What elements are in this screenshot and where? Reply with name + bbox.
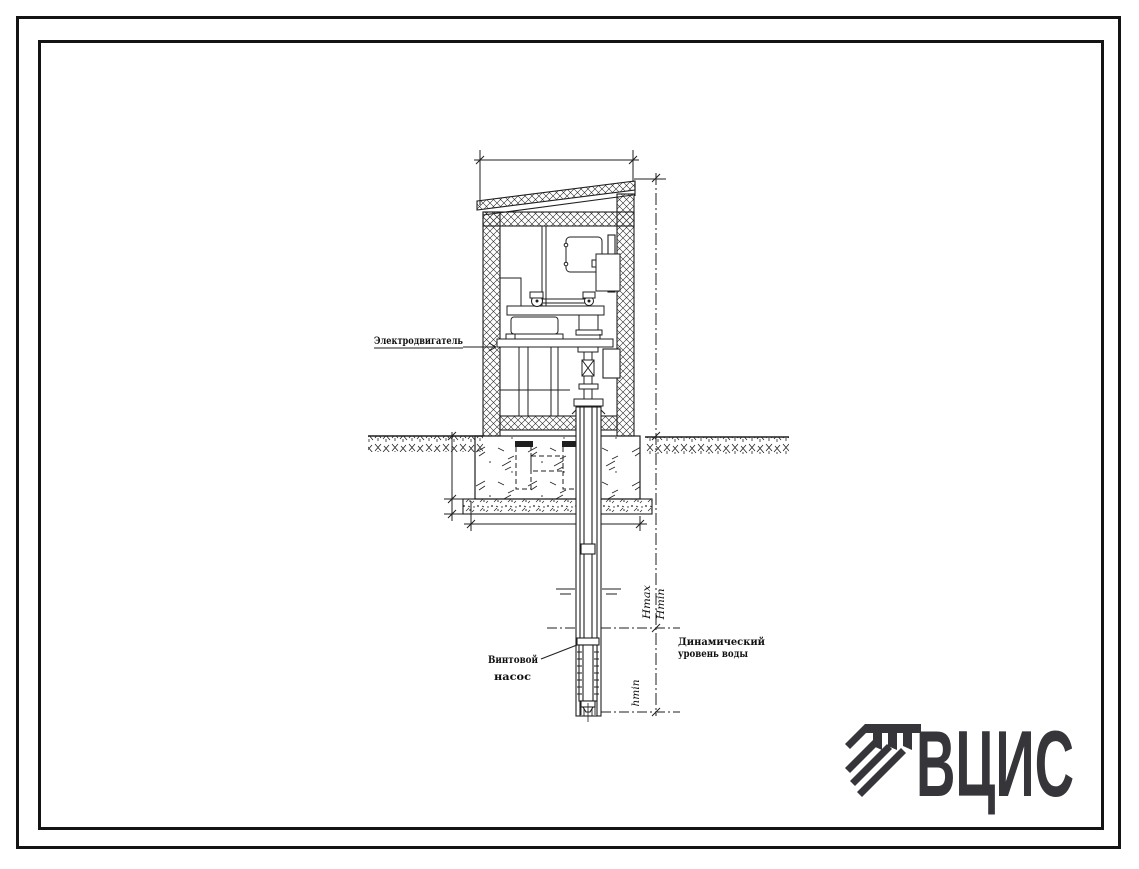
- hmax-dimension-label: Hmax: [642, 585, 653, 621]
- depth-dimension-labels: Hmax Hmin hmin: [631, 585, 667, 707]
- interior-equipment: [497, 226, 620, 416]
- drawing-sheet: Электродвигатель Винтовой насос Динамиче…: [0, 0, 1139, 869]
- electrical-conduit: [500, 278, 521, 306]
- dimension-lines: [444, 150, 680, 716]
- ground-surface-left: [368, 436, 483, 452]
- dynamic-level-label-line2: уровень воды: [678, 649, 748, 660]
- pump-label-line1: Винтовой: [488, 654, 538, 666]
- left-wall: [483, 212, 500, 436]
- technical-drawing: Электродвигатель Винтовой насос Динамиче…: [0, 0, 1139, 869]
- hmin-dimension-label: Hmin: [656, 589, 667, 621]
- screw-pump: [577, 638, 599, 712]
- ground-surface-right: [645, 437, 789, 454]
- vcis-column-emblem-icon: [845, 724, 921, 797]
- drive-frame-beam: [507, 306, 604, 315]
- anchor-plate: [515, 441, 533, 447]
- pump-callout: Винтовой насос: [488, 645, 577, 683]
- motor-callout: Электродвигатель: [374, 335, 496, 351]
- right-wall: [617, 194, 634, 436]
- motor-label: Электродвигатель: [374, 335, 463, 347]
- riser-coupling: [581, 544, 595, 554]
- wall-niche: [603, 349, 620, 378]
- dynamic-level-label-line1: Динамический: [678, 637, 766, 648]
- dynamic-level-callout: Динамический уровень воды: [678, 637, 766, 660]
- foundation-block: [475, 436, 640, 499]
- vcis-logo-text: ВЦИС: [916, 711, 1074, 816]
- pump-discharge-head: [576, 315, 602, 335]
- belt-drive: [530, 292, 595, 307]
- gravel-bedding: [463, 499, 652, 514]
- callout-labels: Электродвигатель Винтовой насос Динамиче…: [374, 335, 766, 707]
- ceiling-slab: [483, 212, 634, 226]
- hlower-dimension-label: hmin: [631, 680, 642, 707]
- pump-label-line2: насос: [494, 671, 531, 683]
- pump-leader-line: [541, 645, 577, 659]
- vcis-logo: ВЦИС: [845, 711, 1074, 816]
